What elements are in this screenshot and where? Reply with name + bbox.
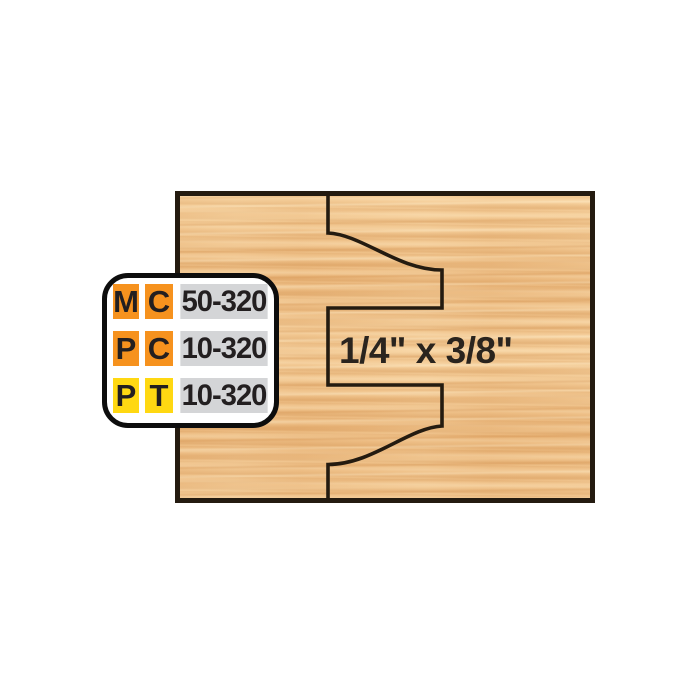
material-code-cell: P bbox=[113, 378, 139, 413]
spec-code-table: M C 50-320 P C 10-320 P T 10-320 bbox=[102, 273, 279, 428]
type-code-cell: C bbox=[145, 284, 173, 319]
material-code-cell: M bbox=[113, 284, 139, 319]
item-number-cell: 10-320 bbox=[180, 378, 267, 413]
product-illustration: 1/4" x 3/8" M C 50-320 P C 10-320 P T 10… bbox=[0, 0, 700, 700]
item-number-cell: 10-320 bbox=[180, 331, 267, 366]
dimension-label: 1/4" x 3/8" bbox=[339, 330, 513, 372]
type-code-cell: C bbox=[145, 331, 173, 366]
material-code-cell: P bbox=[113, 331, 139, 366]
type-code-cell: T bbox=[145, 378, 173, 413]
item-number-cell: 50-320 bbox=[180, 284, 267, 319]
